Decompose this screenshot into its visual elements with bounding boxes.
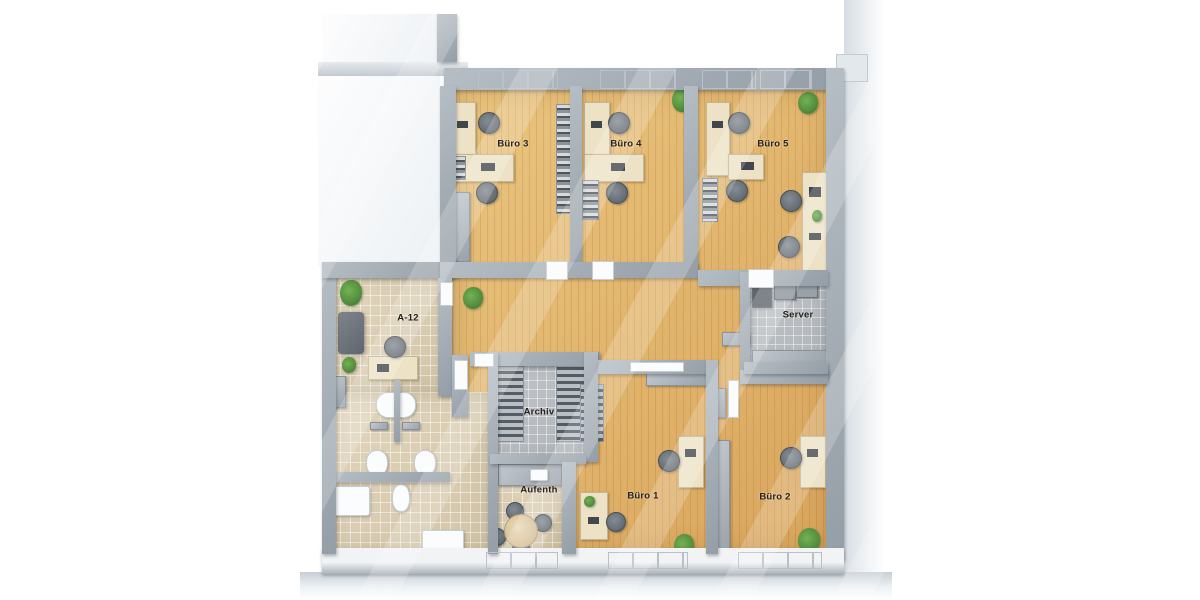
a12-desk bbox=[368, 356, 418, 380]
buero3-chair-2 bbox=[476, 182, 498, 204]
buero1-desk-1 bbox=[678, 436, 704, 488]
buero4-chair-2 bbox=[606, 182, 628, 204]
window-buero3 bbox=[478, 70, 558, 89]
window-buero4 bbox=[600, 70, 676, 89]
wc-urinal-block bbox=[330, 486, 370, 516]
aufenth-kitchen-sink bbox=[530, 469, 548, 481]
a12-plant-bottom bbox=[342, 357, 356, 373]
window-buero5-right bbox=[760, 70, 812, 89]
room-label-buero2: Büro 2 bbox=[759, 492, 790, 503]
wc-shelf-left bbox=[370, 422, 388, 430]
window-buero5-left bbox=[702, 70, 756, 89]
buero1-chair-2 bbox=[606, 512, 626, 532]
buero5-chair-2 bbox=[726, 180, 748, 202]
wall-aufenth-right bbox=[562, 462, 576, 554]
roof-parapet bbox=[322, 14, 438, 62]
room-label-aufenth: Aufenth bbox=[520, 485, 557, 496]
wall-buero2-top bbox=[744, 362, 828, 374]
buero1-chair-1 bbox=[658, 450, 680, 472]
buero4-chair-1 bbox=[608, 112, 630, 134]
buero4-desk-main bbox=[584, 154, 644, 182]
wc-partition-lower bbox=[330, 472, 450, 482]
wc-toilet-3 bbox=[392, 484, 410, 512]
wall-divider-buero3-4 bbox=[570, 86, 582, 272]
window-bottom-buero1 bbox=[608, 552, 688, 569]
a12-plant-top bbox=[340, 280, 362, 306]
room-label-buero3: Büro 3 bbox=[497, 139, 528, 150]
door-buero4 bbox=[592, 261, 614, 280]
buero5-chair-3 bbox=[780, 190, 802, 212]
wall-divider-buero1-2 bbox=[706, 360, 718, 554]
room-label-buero4: Büro 4 bbox=[610, 139, 641, 150]
wall-divider-buero4-5 bbox=[684, 86, 698, 272]
buero5-desk-main bbox=[728, 154, 764, 180]
aufenth-round-table bbox=[504, 514, 538, 548]
door-wc bbox=[454, 360, 468, 390]
buero4-folder-shelf bbox=[582, 180, 599, 220]
door-a12 bbox=[440, 282, 453, 306]
wall-buero3-4-bottom bbox=[440, 262, 698, 278]
wc-partition-middle bbox=[394, 380, 400, 442]
buero2-chair bbox=[780, 447, 802, 469]
corridor-plant bbox=[463, 287, 483, 309]
room-label-buero1: Büro 1 bbox=[627, 491, 658, 502]
exterior-ground-bottom bbox=[300, 572, 892, 600]
room-label-buero5: Büro 5 bbox=[757, 139, 788, 150]
room-label-a12: A-12 bbox=[397, 313, 418, 324]
door-buero5 bbox=[748, 269, 774, 288]
buero5-chair-4 bbox=[778, 236, 800, 258]
buero5-desk-long bbox=[802, 172, 828, 272]
buero2-desk bbox=[800, 436, 826, 488]
a12-chair bbox=[384, 336, 406, 358]
buero3-chair-1 bbox=[478, 112, 500, 134]
roof-terrace bbox=[318, 76, 440, 266]
wall-a12-top bbox=[322, 262, 456, 278]
buero5-plant-window bbox=[798, 92, 818, 114]
window-bottom-aufenth bbox=[486, 552, 558, 569]
buero5-desk-side bbox=[706, 102, 730, 176]
floor-plan-render: Büro 3 Büro 4 Büro 5 A-12 Server Archiv … bbox=[0, 0, 1200, 600]
door-archiv bbox=[474, 353, 494, 367]
wc-shelf-right bbox=[402, 422, 420, 430]
roof-parapet-wall bbox=[437, 14, 457, 62]
buero5-folder-shelf bbox=[702, 178, 718, 222]
exterior-ground-right bbox=[844, 0, 892, 600]
door-buero2-open bbox=[728, 380, 739, 418]
room-label-archiv: Archiv bbox=[524, 407, 555, 418]
door-buero3 bbox=[546, 261, 568, 280]
window-bottom-buero2 bbox=[738, 552, 822, 569]
wall-archiv-left bbox=[488, 352, 498, 554]
archiv-shelf-left bbox=[494, 366, 524, 442]
door-buero1-open bbox=[630, 362, 684, 372]
wall-left bbox=[322, 262, 336, 554]
wall-buero3-left bbox=[440, 86, 456, 268]
wall-archiv-right bbox=[584, 352, 598, 462]
a12-sofa bbox=[338, 312, 364, 354]
buero1-desk-plant bbox=[584, 496, 595, 507]
buero5-plant-desk bbox=[812, 210, 822, 222]
room-label-server: Server bbox=[783, 310, 814, 321]
wall-right bbox=[826, 68, 844, 560]
buero5-chair-1 bbox=[728, 112, 750, 134]
